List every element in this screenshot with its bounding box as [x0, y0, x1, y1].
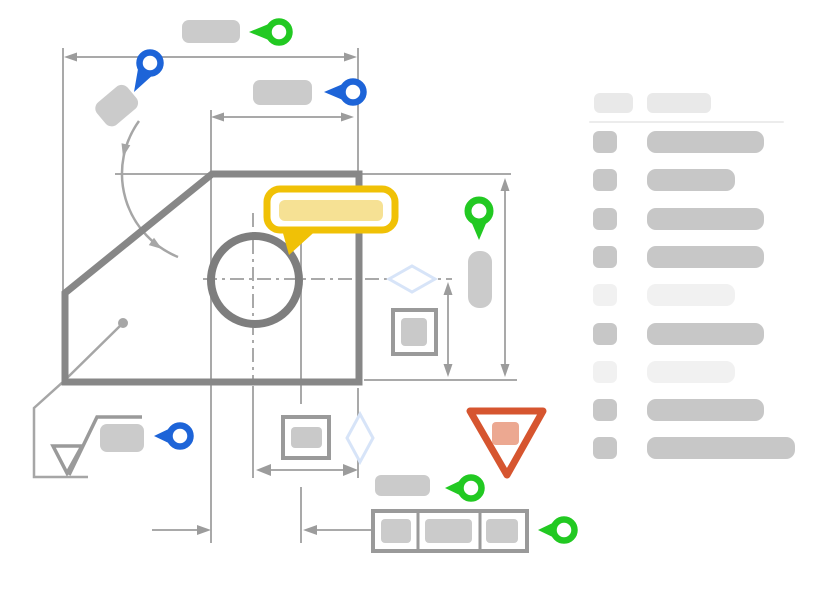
annotation-list	[589, 88, 799, 468]
label-placeholder	[100, 424, 144, 452]
label-placeholder	[375, 475, 430, 496]
leader-dot	[118, 318, 128, 328]
list-item-icon-placeholder	[593, 131, 617, 153]
green-pin-icon[interactable]	[445, 477, 482, 499]
list-item-icon-placeholder	[593, 246, 617, 268]
blue-pin-icon[interactable]	[324, 81, 364, 103]
label-placeholder	[253, 80, 312, 105]
list-item-label-placeholder[interactable]	[647, 361, 735, 383]
list-item-icon-placeholder	[593, 284, 617, 306]
blue-pin-icon[interactable]	[154, 425, 191, 447]
list-item-label-placeholder[interactable]	[647, 246, 764, 268]
list-item-icon-placeholder	[593, 399, 617, 421]
list-item-icon-placeholder	[593, 169, 617, 191]
list-item-label-placeholder[interactable]	[647, 131, 764, 153]
datum-box-bottom	[283, 417, 329, 458]
detail-panel	[589, 88, 799, 468]
list-item-label-placeholder[interactable]	[647, 169, 735, 191]
label-placeholder	[182, 20, 240, 43]
green-pin-icon[interactable]	[249, 21, 290, 43]
list-item-icon-placeholder	[593, 437, 617, 459]
list-item-label-placeholder[interactable]	[647, 323, 764, 345]
comment-text-placeholder	[279, 200, 383, 221]
list-item-label-placeholder[interactable]	[647, 284, 735, 306]
list-item-label-placeholder[interactable]	[647, 399, 764, 421]
dimension-arrows	[64, 53, 510, 536]
green-pin-icon[interactable]	[538, 519, 575, 541]
drawing-review-canvas	[0, 0, 827, 591]
label-placeholder-rotated	[92, 82, 141, 130]
diamond-node-bottom	[347, 414, 373, 462]
label-placeholder-vertical	[468, 251, 492, 308]
feature-control-frame	[373, 511, 527, 551]
list-item-label-placeholder[interactable]	[647, 437, 795, 459]
green-pin-icon[interactable]	[468, 200, 490, 240]
construction-lines	[63, 48, 517, 543]
warning-triangle-icon[interactable]	[470, 411, 543, 475]
list-item-icon-placeholder	[593, 208, 617, 230]
warning-text-placeholder	[492, 422, 519, 445]
list-item-icon-placeholder	[593, 361, 617, 383]
diamond-node-right	[389, 266, 435, 292]
datum-box-right	[393, 310, 436, 354]
list-item-icon-placeholder	[593, 323, 617, 345]
list-item-label-placeholder[interactable]	[647, 208, 764, 230]
blue-pin-icon[interactable]	[134, 53, 161, 93]
